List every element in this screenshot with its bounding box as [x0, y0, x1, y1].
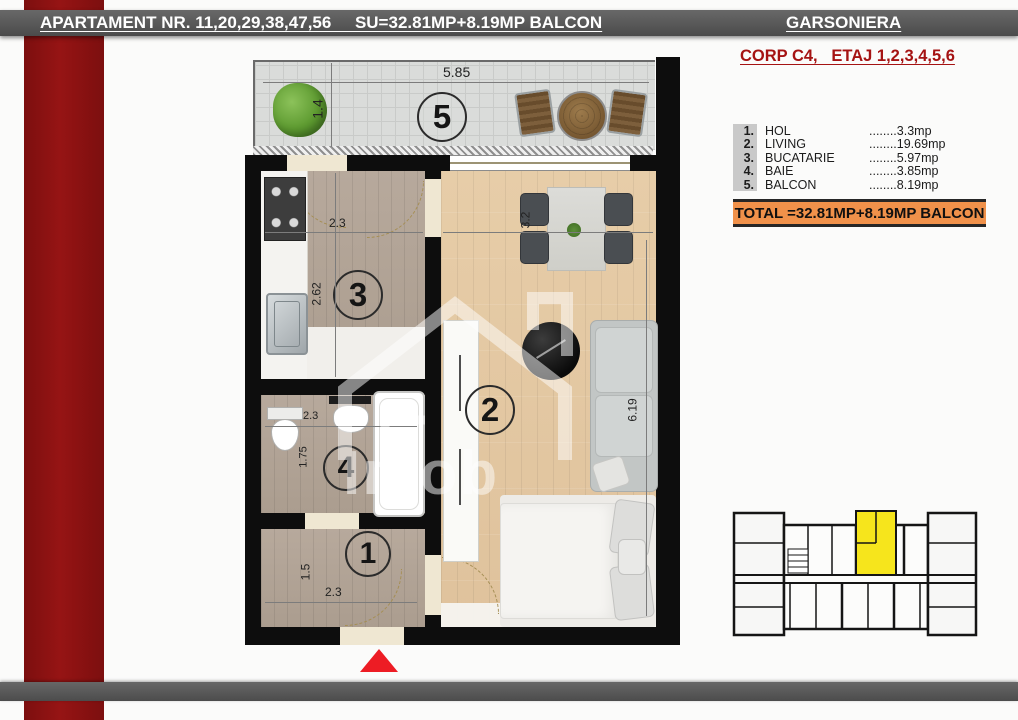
sofa-pillow [591, 455, 631, 493]
corp-floor-label: CORP C4, ETAJ 1,2,3,4,5,6 [740, 47, 955, 66]
balcony-depth-dim: 1.4 [310, 99, 326, 118]
balcony-door-opening [287, 155, 347, 171]
room-number-balcony: 5 [417, 92, 467, 142]
wardrobe-icon [443, 320, 479, 562]
bathtub-icon [373, 391, 425, 517]
building-key-plan [728, 503, 983, 653]
living-width-dim: 3.2 [518, 212, 532, 229]
legend-room-number: 3. [733, 151, 757, 164]
apartment-floorplan: 5.85 1.4 5 [245, 55, 680, 660]
dim-line-kitchen-depth [335, 173, 336, 377]
bed-icon [500, 495, 656, 627]
kitchen-sink-icon [266, 293, 308, 355]
room-number-hall: 1 [345, 531, 391, 577]
legend-room-number: 4. [733, 164, 757, 177]
legend-room-area: ........19.69mp [869, 137, 987, 151]
table-plant-icon [567, 223, 581, 237]
dim-line-hall-width [265, 602, 417, 603]
balcony-chair-icon [606, 89, 648, 138]
dim-line-balcony-depth [331, 63, 332, 147]
wardrobe-handle [459, 355, 461, 411]
right-exterior-wall [656, 57, 680, 645]
entrance-door-opening [340, 627, 404, 645]
dining-chair-icon [604, 231, 633, 264]
kitchen-depth-dim: 2.62 [310, 282, 324, 305]
legend-row: 1. HOL ........3.3mp [733, 124, 987, 137]
floorplan-page: APARTAMENT NR. 11,20,29,38,47,56 SU=32.8… [0, 0, 1018, 720]
legend-room-area: ........3.3mp [869, 124, 987, 138]
legend-room-name: BUCATARIE [757, 151, 869, 165]
dim-line-living-depth [646, 240, 647, 616]
footer-bar [0, 682, 1018, 701]
bath-shelf [329, 396, 371, 404]
dim-line-bath-width [265, 426, 417, 427]
legend-row: 2. LIVING ........19.69mp [733, 137, 987, 150]
dim-line-balcony-width [263, 82, 649, 83]
bed-blanket [500, 503, 618, 619]
kitchen-floor-light-area [307, 327, 425, 379]
legend-room-number: 5. [733, 178, 757, 191]
dim-line-living-width [443, 232, 653, 233]
living-window [450, 155, 630, 171]
wardrobe-handle [459, 449, 461, 505]
legend-row: 5. BALCON ........8.19mp [733, 178, 987, 191]
dining-chair-icon [520, 231, 549, 264]
legend-room-area: ........5.97mp [869, 151, 987, 165]
left-red-band [24, 0, 104, 720]
apartment-type-label: GARSONIERA [786, 13, 901, 33]
balcony-chair-icon [514, 89, 556, 138]
sofa-cushion [595, 395, 653, 457]
dim-line-kitchen-width [265, 232, 423, 233]
legend-room-name: BAIE [757, 164, 869, 178]
balcony-sill-hatch [253, 146, 653, 155]
kitchen-width-dim: 2.3 [329, 216, 346, 230]
legend-row: 4. BAIE ........3.85mp [733, 164, 987, 177]
hall-depth-dim: 1.5 [298, 564, 312, 581]
entrance-arrow-icon [360, 649, 398, 672]
room-number-bath: 4 [323, 445, 369, 491]
kitchen-door-opening [425, 179, 441, 237]
room-number-living: 2 [465, 385, 515, 435]
balcony-width-dim: 5.85 [443, 64, 470, 80]
bath-depth-dim: 1.75 [298, 446, 310, 467]
bath-sink-icon [333, 405, 369, 433]
dining-chair-icon [604, 193, 633, 226]
legend-room-name: HOL [757, 124, 869, 138]
room-number-kitchen: 3 [333, 270, 383, 320]
bath-width-dim: 2.3 [303, 410, 318, 422]
coffee-table-icon [522, 322, 580, 380]
bath-door-opening [305, 513, 359, 529]
room-legend: 1. HOL ........3.3mp 2. LIVING ........1… [733, 124, 987, 191]
legend-room-number: 1. [733, 124, 757, 137]
legend-room-number: 2. [733, 137, 757, 150]
total-area-banner: TOTAL =32.81MP+8.19MP BALCON [733, 199, 986, 227]
legend-room-area: ........3.85mp [869, 164, 987, 178]
legend-room-name: BALCON [757, 178, 869, 192]
living-depth-dim: 6.19 [626, 398, 640, 421]
legend-room-name: LIVING [757, 137, 869, 151]
hall-living-door-opening [425, 555, 441, 615]
legend-row: 3. BUCATARIE ........5.97mp [733, 151, 987, 164]
bed-pillow [618, 539, 646, 575]
hall-width-dim: 2.3 [325, 585, 342, 599]
balcony-table-icon [557, 91, 607, 141]
sofa-cushion [595, 327, 653, 393]
page-title: APARTAMENT NR. 11,20,29,38,47,56 SU=32.8… [40, 13, 602, 33]
sofa-icon [590, 320, 658, 492]
legend-room-area: ........8.19mp [869, 178, 987, 192]
